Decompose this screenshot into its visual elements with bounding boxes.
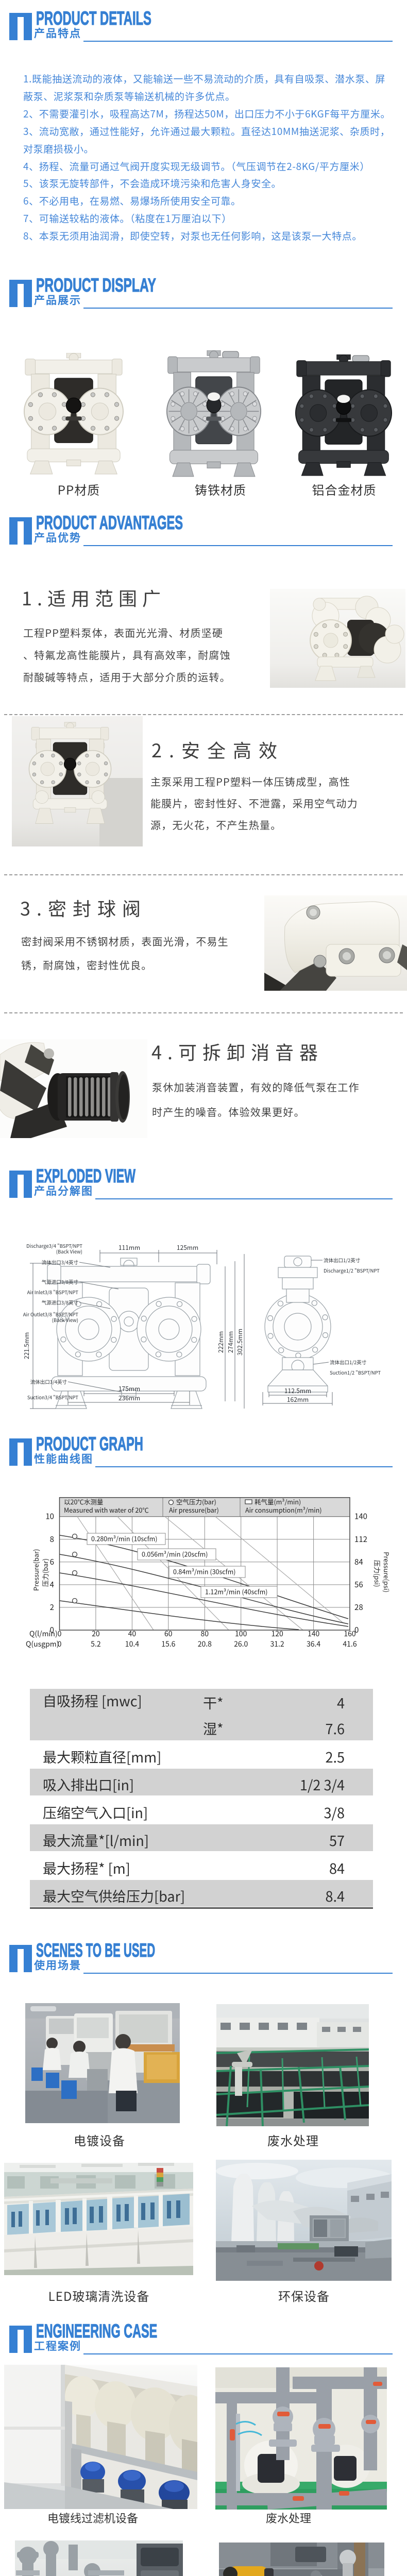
svg-text:140: 140 bbox=[354, 1511, 367, 1522]
svg-text:302.5mm: 302.5mm bbox=[235, 1329, 244, 1355]
svg-text:气源进口3/8英寸: 气源进口3/8英寸 bbox=[42, 1278, 79, 1285]
svg-text:0.280m³/min (10scfm): 0.280m³/min (10scfm) bbox=[91, 1534, 157, 1544]
svg-text:0.056m³/min (20scfm): 0.056m³/min (20scfm) bbox=[142, 1549, 208, 1559]
svg-text:流体出口3/4英寸: 流体出口3/4英寸 bbox=[30, 1378, 67, 1385]
svg-text:(Back View): (Back View) bbox=[56, 1248, 82, 1255]
svg-text:140: 140 bbox=[308, 1629, 320, 1639]
svg-text:15.6: 15.6 bbox=[161, 1639, 175, 1649]
svg-text:Air Inlet3/8 "BSPT/NPT: Air Inlet3/8 "BSPT/NPT bbox=[27, 1289, 79, 1296]
svg-text:56: 56 bbox=[354, 1579, 363, 1590]
svg-text:流体出口3/4英寸: 流体出口3/4英寸 bbox=[42, 1259, 79, 1266]
svg-text:125mm: 125mm bbox=[177, 1243, 198, 1252]
svg-text:160: 160 bbox=[344, 1629, 356, 1639]
svg-text:28: 28 bbox=[354, 1602, 363, 1613]
svg-text:压力(psi): 压力(psi) bbox=[372, 1560, 382, 1587]
svg-text:0: 0 bbox=[58, 1629, 62, 1639]
svg-text:(Back View): (Back View) bbox=[52, 1316, 78, 1324]
svg-text:60: 60 bbox=[164, 1629, 173, 1639]
svg-text:80: 80 bbox=[201, 1629, 209, 1639]
svg-text:流体出口1/2英寸: 流体出口1/2英寸 bbox=[324, 1257, 361, 1264]
svg-text:6: 6 bbox=[50, 1556, 54, 1567]
svg-text:压力(bar): 压力(bar) bbox=[40, 1558, 50, 1587]
svg-text:Air consumption(m³/min): Air consumption(m³/min) bbox=[245, 1505, 322, 1515]
svg-text:Q(usgpm): Q(usgpm) bbox=[26, 1639, 59, 1649]
svg-text:Discharge1/2 "BSPT/NPT: Discharge1/2 "BSPT/NPT bbox=[324, 1267, 380, 1274]
svg-text:41.6: 41.6 bbox=[343, 1639, 357, 1649]
svg-text:20.8: 20.8 bbox=[198, 1639, 212, 1649]
svg-text:111mm: 111mm bbox=[118, 1243, 140, 1252]
svg-text:112: 112 bbox=[354, 1534, 367, 1545]
svg-text:222mm: 222mm bbox=[216, 1331, 225, 1353]
svg-text:40: 40 bbox=[128, 1629, 137, 1639]
svg-text:10: 10 bbox=[45, 1511, 54, 1522]
svg-text:20: 20 bbox=[92, 1629, 100, 1639]
svg-text:气源进口3/8英寸: 气源进口3/8英寸 bbox=[42, 1299, 79, 1306]
svg-text:100: 100 bbox=[235, 1629, 247, 1639]
svg-text:175mm: 175mm bbox=[118, 1384, 140, 1393]
svg-text:31.2: 31.2 bbox=[270, 1639, 284, 1649]
svg-text:36.4: 36.4 bbox=[307, 1639, 320, 1649]
svg-text:4: 4 bbox=[50, 1579, 54, 1590]
svg-text:112.5mm: 112.5mm bbox=[284, 1386, 311, 1395]
svg-text:0.84m³/min (30scfm): 0.84m³/min (30scfm) bbox=[173, 1567, 236, 1577]
svg-text:8: 8 bbox=[50, 1534, 54, 1545]
svg-text:274mm: 274mm bbox=[226, 1331, 235, 1353]
svg-text:120: 120 bbox=[271, 1629, 283, 1639]
svg-text:162mm: 162mm bbox=[287, 1395, 309, 1404]
svg-text:2: 2 bbox=[50, 1602, 54, 1613]
svg-text:236mm: 236mm bbox=[118, 1394, 140, 1402]
svg-text:1.12m³/min (40scfm): 1.12m³/min (40scfm) bbox=[205, 1587, 268, 1597]
svg-text:Pressure(psi): Pressure(psi) bbox=[382, 1552, 392, 1592]
svg-text:84: 84 bbox=[354, 1556, 363, 1567]
svg-text:221.5mm: 221.5mm bbox=[22, 1332, 31, 1359]
svg-text:Q(l/min): Q(l/min) bbox=[29, 1629, 58, 1639]
svg-text:26.0: 26.0 bbox=[234, 1639, 248, 1649]
svg-text:Pressure(bar): Pressure(bar) bbox=[31, 1549, 41, 1591]
svg-text:5.2: 5.2 bbox=[91, 1639, 101, 1649]
svg-text:10.4: 10.4 bbox=[125, 1639, 139, 1649]
svg-text:Suction1/2 "BSPT/NPT: Suction1/2 "BSPT/NPT bbox=[330, 1369, 381, 1376]
svg-text:0: 0 bbox=[58, 1639, 62, 1649]
svg-text:Air pressure(bar): Air pressure(bar) bbox=[169, 1505, 219, 1515]
svg-text:流体出口1/2英寸: 流体出口1/2英寸 bbox=[330, 1359, 367, 1366]
svg-text:Measured with water of 20℃: Measured with water of 20℃ bbox=[64, 1505, 149, 1515]
svg-text:Suction3/4 "BSPT/NPT: Suction3/4 "BSPT/NPT bbox=[27, 1394, 78, 1401]
